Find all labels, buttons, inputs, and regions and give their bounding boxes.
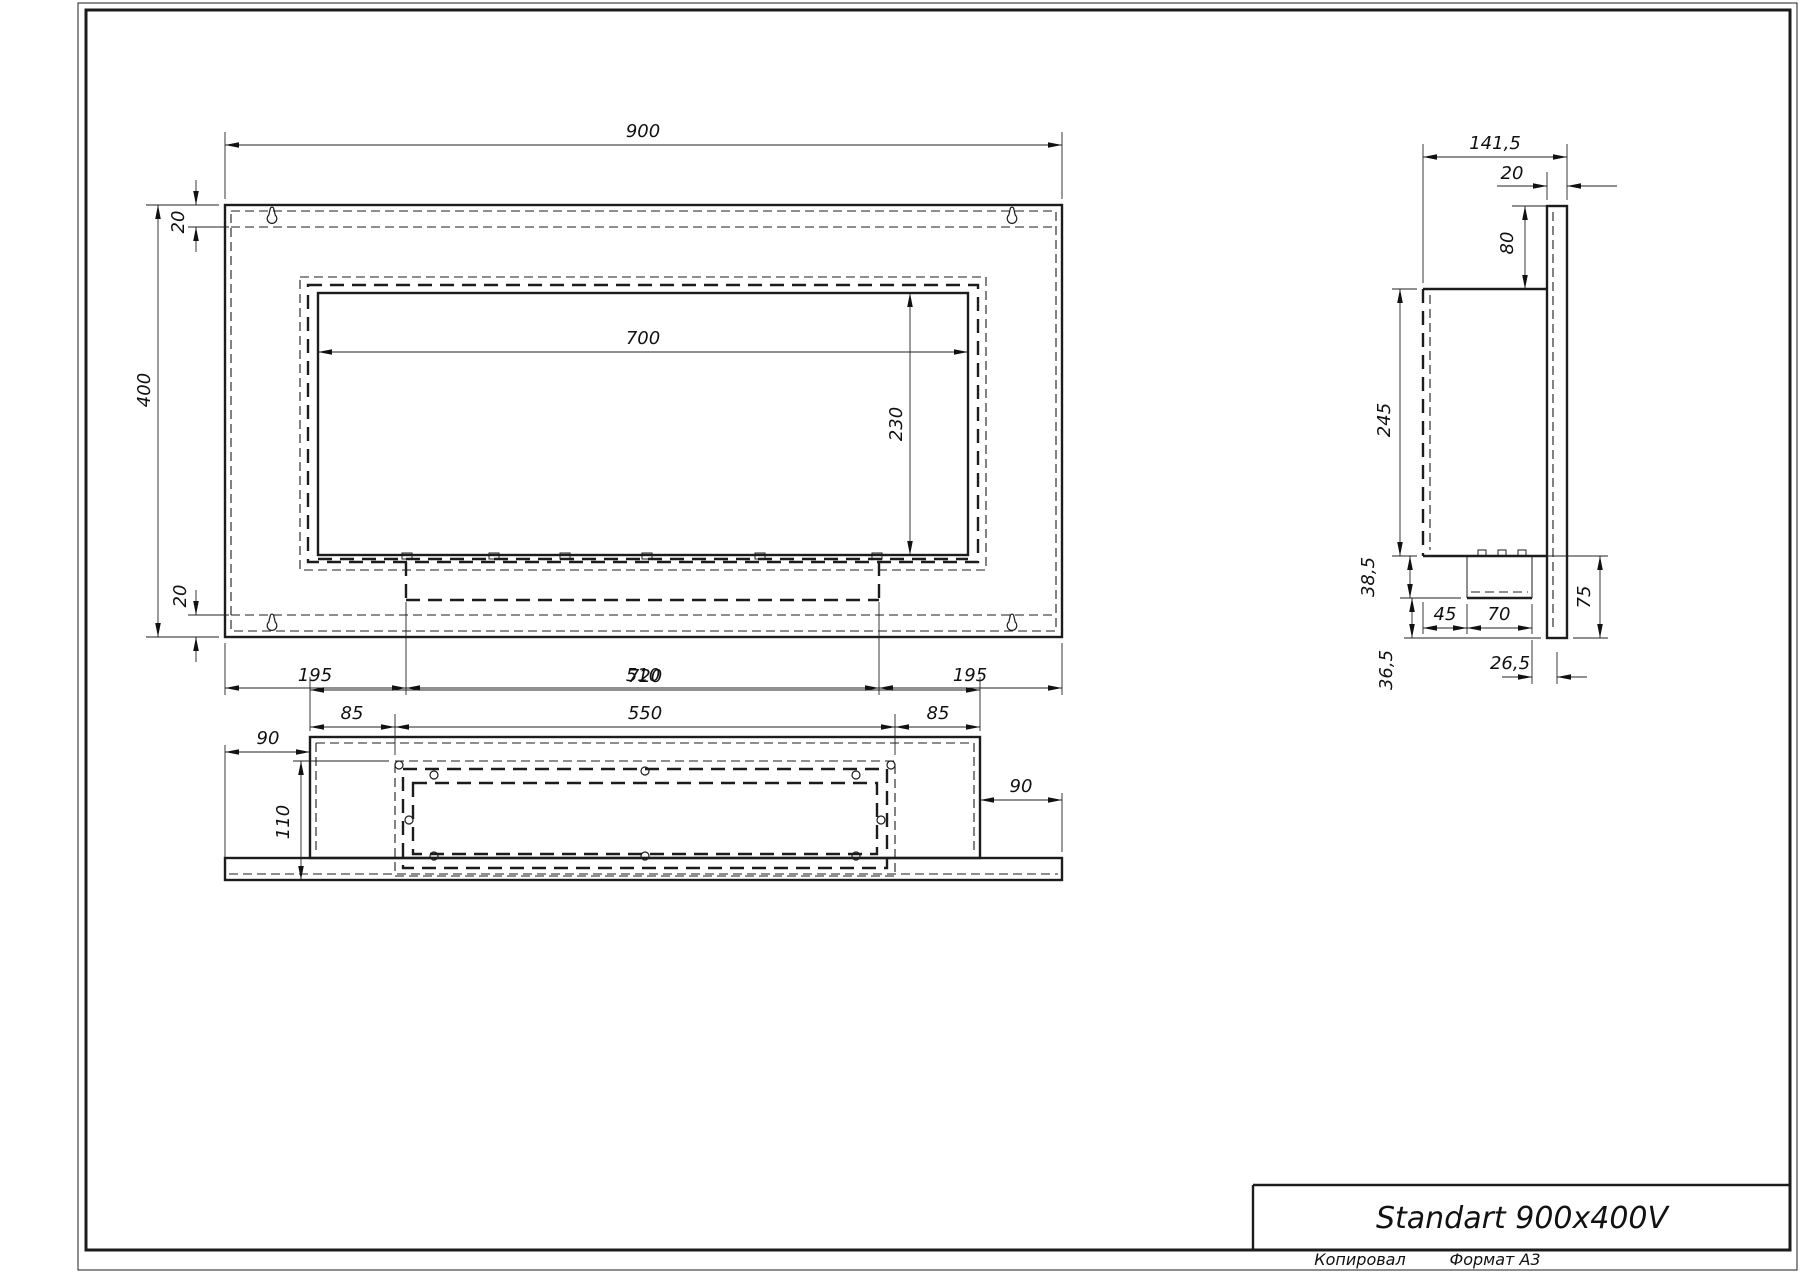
drawing-frame xyxy=(86,10,1790,1250)
dim-side-depth: 141,5 xyxy=(1469,133,1521,154)
technical-drawing: 900 400 20 20 700 230 195 510 195 xyxy=(0,0,1800,1273)
drawing-sheet: 900 400 20 20 700 230 195 510 195 xyxy=(0,0,1800,1273)
drawing-title: Standart 900x400V xyxy=(1376,1201,1671,1236)
keyhole-slot-top-left xyxy=(267,207,277,223)
keyhole-slot-top-right xyxy=(1007,207,1017,223)
front-view: 900 400 20 20 700 230 195 510 195 xyxy=(134,121,1062,695)
front-outer-panel xyxy=(225,205,1062,637)
side-front-panel xyxy=(1547,206,1567,638)
dim-bottom-inset-right: 85 xyxy=(927,703,950,724)
dim-bottom-depth: 110 xyxy=(273,805,294,839)
dim-side-offset265: 26,5 xyxy=(1490,653,1530,674)
format-label: Формат А3 xyxy=(1449,1250,1540,1269)
dim-front-width: 900 xyxy=(626,121,660,142)
dim-side-tray: 38,5 xyxy=(1358,557,1379,597)
dim-front-height: 400 xyxy=(134,373,155,407)
dim-bottom-offset-right: 90 xyxy=(1010,776,1033,797)
bottom-view: 720 85 550 85 90 110 90 xyxy=(225,666,1062,880)
dim-side-gap45: 45 xyxy=(1434,604,1457,625)
bottom-frame-inner-hidden xyxy=(413,783,877,854)
dim-side-panel: 20 xyxy=(1501,163,1524,184)
hole xyxy=(877,816,885,824)
dim-front-right: 195 xyxy=(953,665,987,686)
bottom-mounting-holes xyxy=(395,761,895,860)
hole xyxy=(395,761,403,769)
dim-bottom-width: 720 xyxy=(628,666,662,687)
dim-side-lower: 75 xyxy=(1574,586,1595,609)
hole xyxy=(405,816,413,824)
title-block: Standart 900x400V Копировал Формат А3 xyxy=(1253,1185,1790,1269)
bottom-body xyxy=(310,737,980,858)
dim-bottom-inset-left: 85 xyxy=(341,703,364,724)
dim-side-body-height: 245 xyxy=(1374,403,1395,437)
hole xyxy=(887,761,895,769)
dim-side-burner: 70 xyxy=(1488,604,1511,625)
hole xyxy=(430,771,438,779)
dim-front-opening-height: 230 xyxy=(886,407,907,441)
dim-side-top-offset: 80 xyxy=(1497,232,1518,255)
keyhole-slot-bottom-right xyxy=(1007,614,1017,630)
front-opening-outer-hidden xyxy=(300,277,986,570)
dim-front-opening-width: 700 xyxy=(626,328,660,349)
side-view: 141,5 20 80 245 38,5 36,5 45 70 xyxy=(1358,133,1617,690)
hole xyxy=(852,771,860,779)
dim-front-top-gap: 20 xyxy=(168,211,189,234)
dim-front-bottom-gap: 20 xyxy=(170,585,191,608)
dim-front-left: 195 xyxy=(298,665,332,686)
keyhole-slot-bottom-left xyxy=(267,614,277,630)
dim-bottom-frame: 550 xyxy=(628,703,662,724)
dim-bottom-offset-left: 90 xyxy=(257,728,280,749)
copied-label: Копировал xyxy=(1314,1250,1405,1269)
front-hem-hidden-edge xyxy=(231,211,1056,631)
front-opening-mid-hidden xyxy=(308,285,978,562)
dim-side-offset365: 36,5 xyxy=(1376,650,1397,690)
